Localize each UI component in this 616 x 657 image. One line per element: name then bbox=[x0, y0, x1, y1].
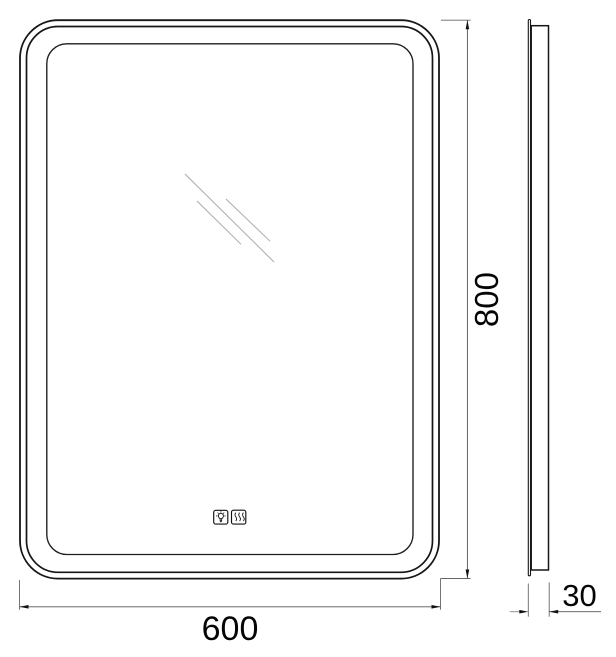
svg-text:600: 600 bbox=[202, 610, 259, 648]
svg-text:30: 30 bbox=[562, 578, 596, 613]
svg-text:800: 800 bbox=[468, 272, 505, 327]
